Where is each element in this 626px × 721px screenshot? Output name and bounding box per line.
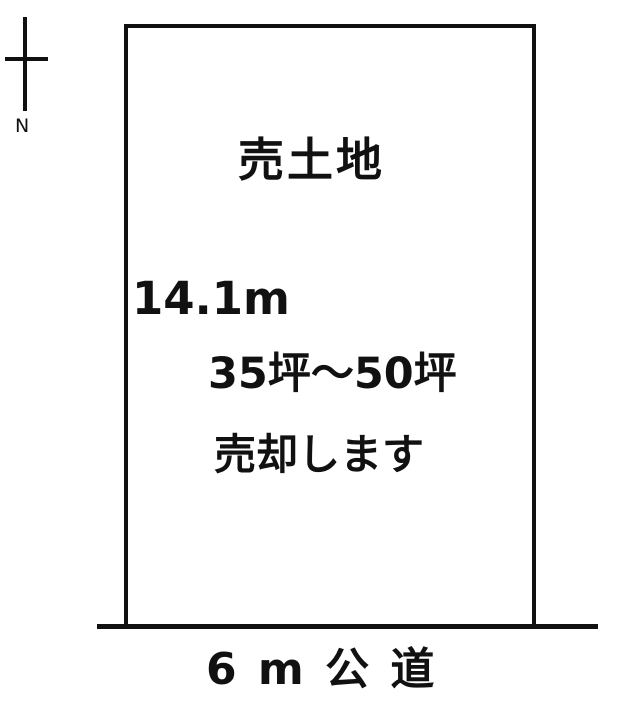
land-plot-diagram: N 売土地 14.1m 35坪〜50坪 売却します 6 m 公 道 (0, 0, 626, 721)
area-range-label: 35坪〜50坪 (208, 353, 457, 396)
frontage-dimension-label: 14.1m (132, 276, 290, 321)
compass-horizontal-line (5, 57, 48, 61)
north-label: N (15, 117, 29, 136)
plot-title: 売土地 (238, 137, 385, 183)
road-line (97, 624, 598, 629)
road-label: 6 m 公 道 (206, 648, 437, 692)
plot-outline (124, 24, 536, 628)
compass-vertical-line (23, 17, 27, 111)
sale-note-label: 売却します (214, 434, 424, 476)
